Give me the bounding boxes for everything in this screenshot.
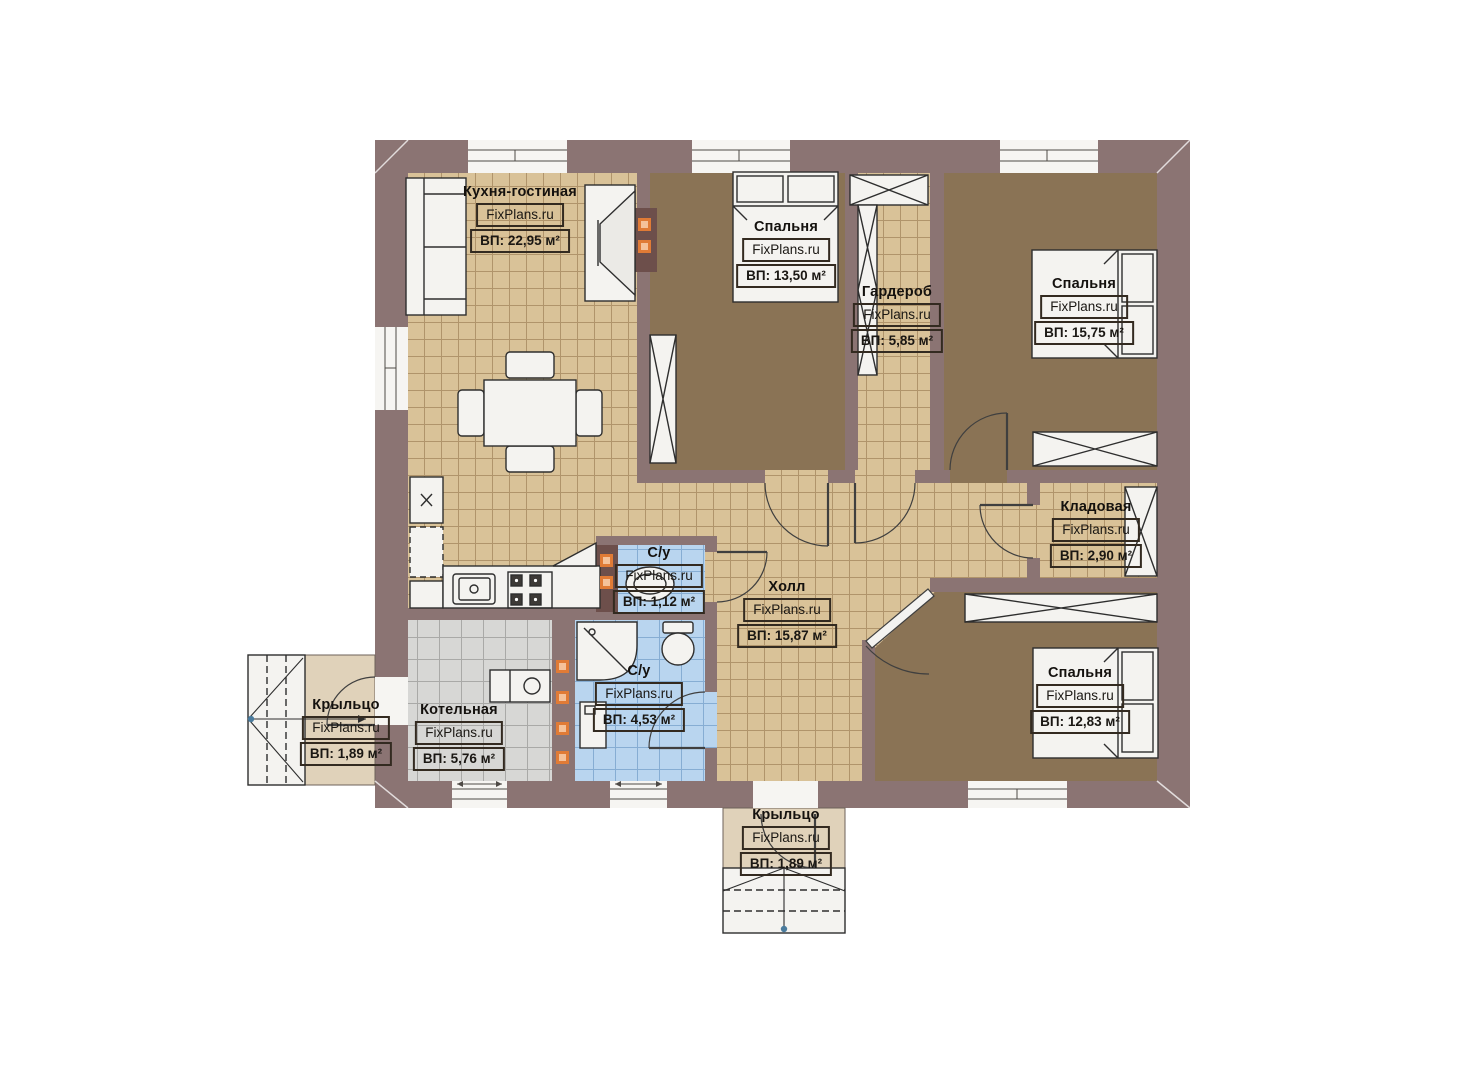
fridge (410, 477, 443, 523)
kitchen-cabinet (410, 581, 443, 608)
window-top-2 (692, 140, 790, 173)
window-top-3 (1000, 140, 1098, 173)
window-bottom-1 (452, 781, 507, 808)
window-left (375, 327, 408, 410)
sofa (406, 178, 466, 315)
bed-bedroom-1 (733, 172, 838, 302)
tv-stand (585, 185, 635, 301)
exterior-door-left (375, 677, 408, 725)
window-bottom-3 (968, 781, 1067, 808)
washing-machine (580, 702, 606, 748)
kitchen-sink (453, 574, 495, 604)
window-bottom-2 (610, 781, 667, 808)
bed-bedroom-2 (1032, 250, 1157, 358)
floor-plan-drawing (0, 0, 1473, 1080)
shower (577, 622, 637, 680)
floor-plan-page: Кухня-гостиная FixPlans.ru ВП: 22,95 м² … (0, 0, 1473, 1080)
exterior-door-bottom (753, 781, 818, 808)
kitchen-cabinet-dashed (410, 527, 443, 577)
floor-porch-left (305, 655, 375, 785)
sink-small-bath (626, 567, 674, 601)
stairs-bottom (723, 868, 845, 933)
window-top-1 (468, 140, 567, 173)
bed-bedroom-3 (1033, 648, 1158, 758)
boiler (490, 670, 550, 702)
wardrobe-unit-left (858, 205, 877, 375)
toilet (662, 622, 694, 665)
